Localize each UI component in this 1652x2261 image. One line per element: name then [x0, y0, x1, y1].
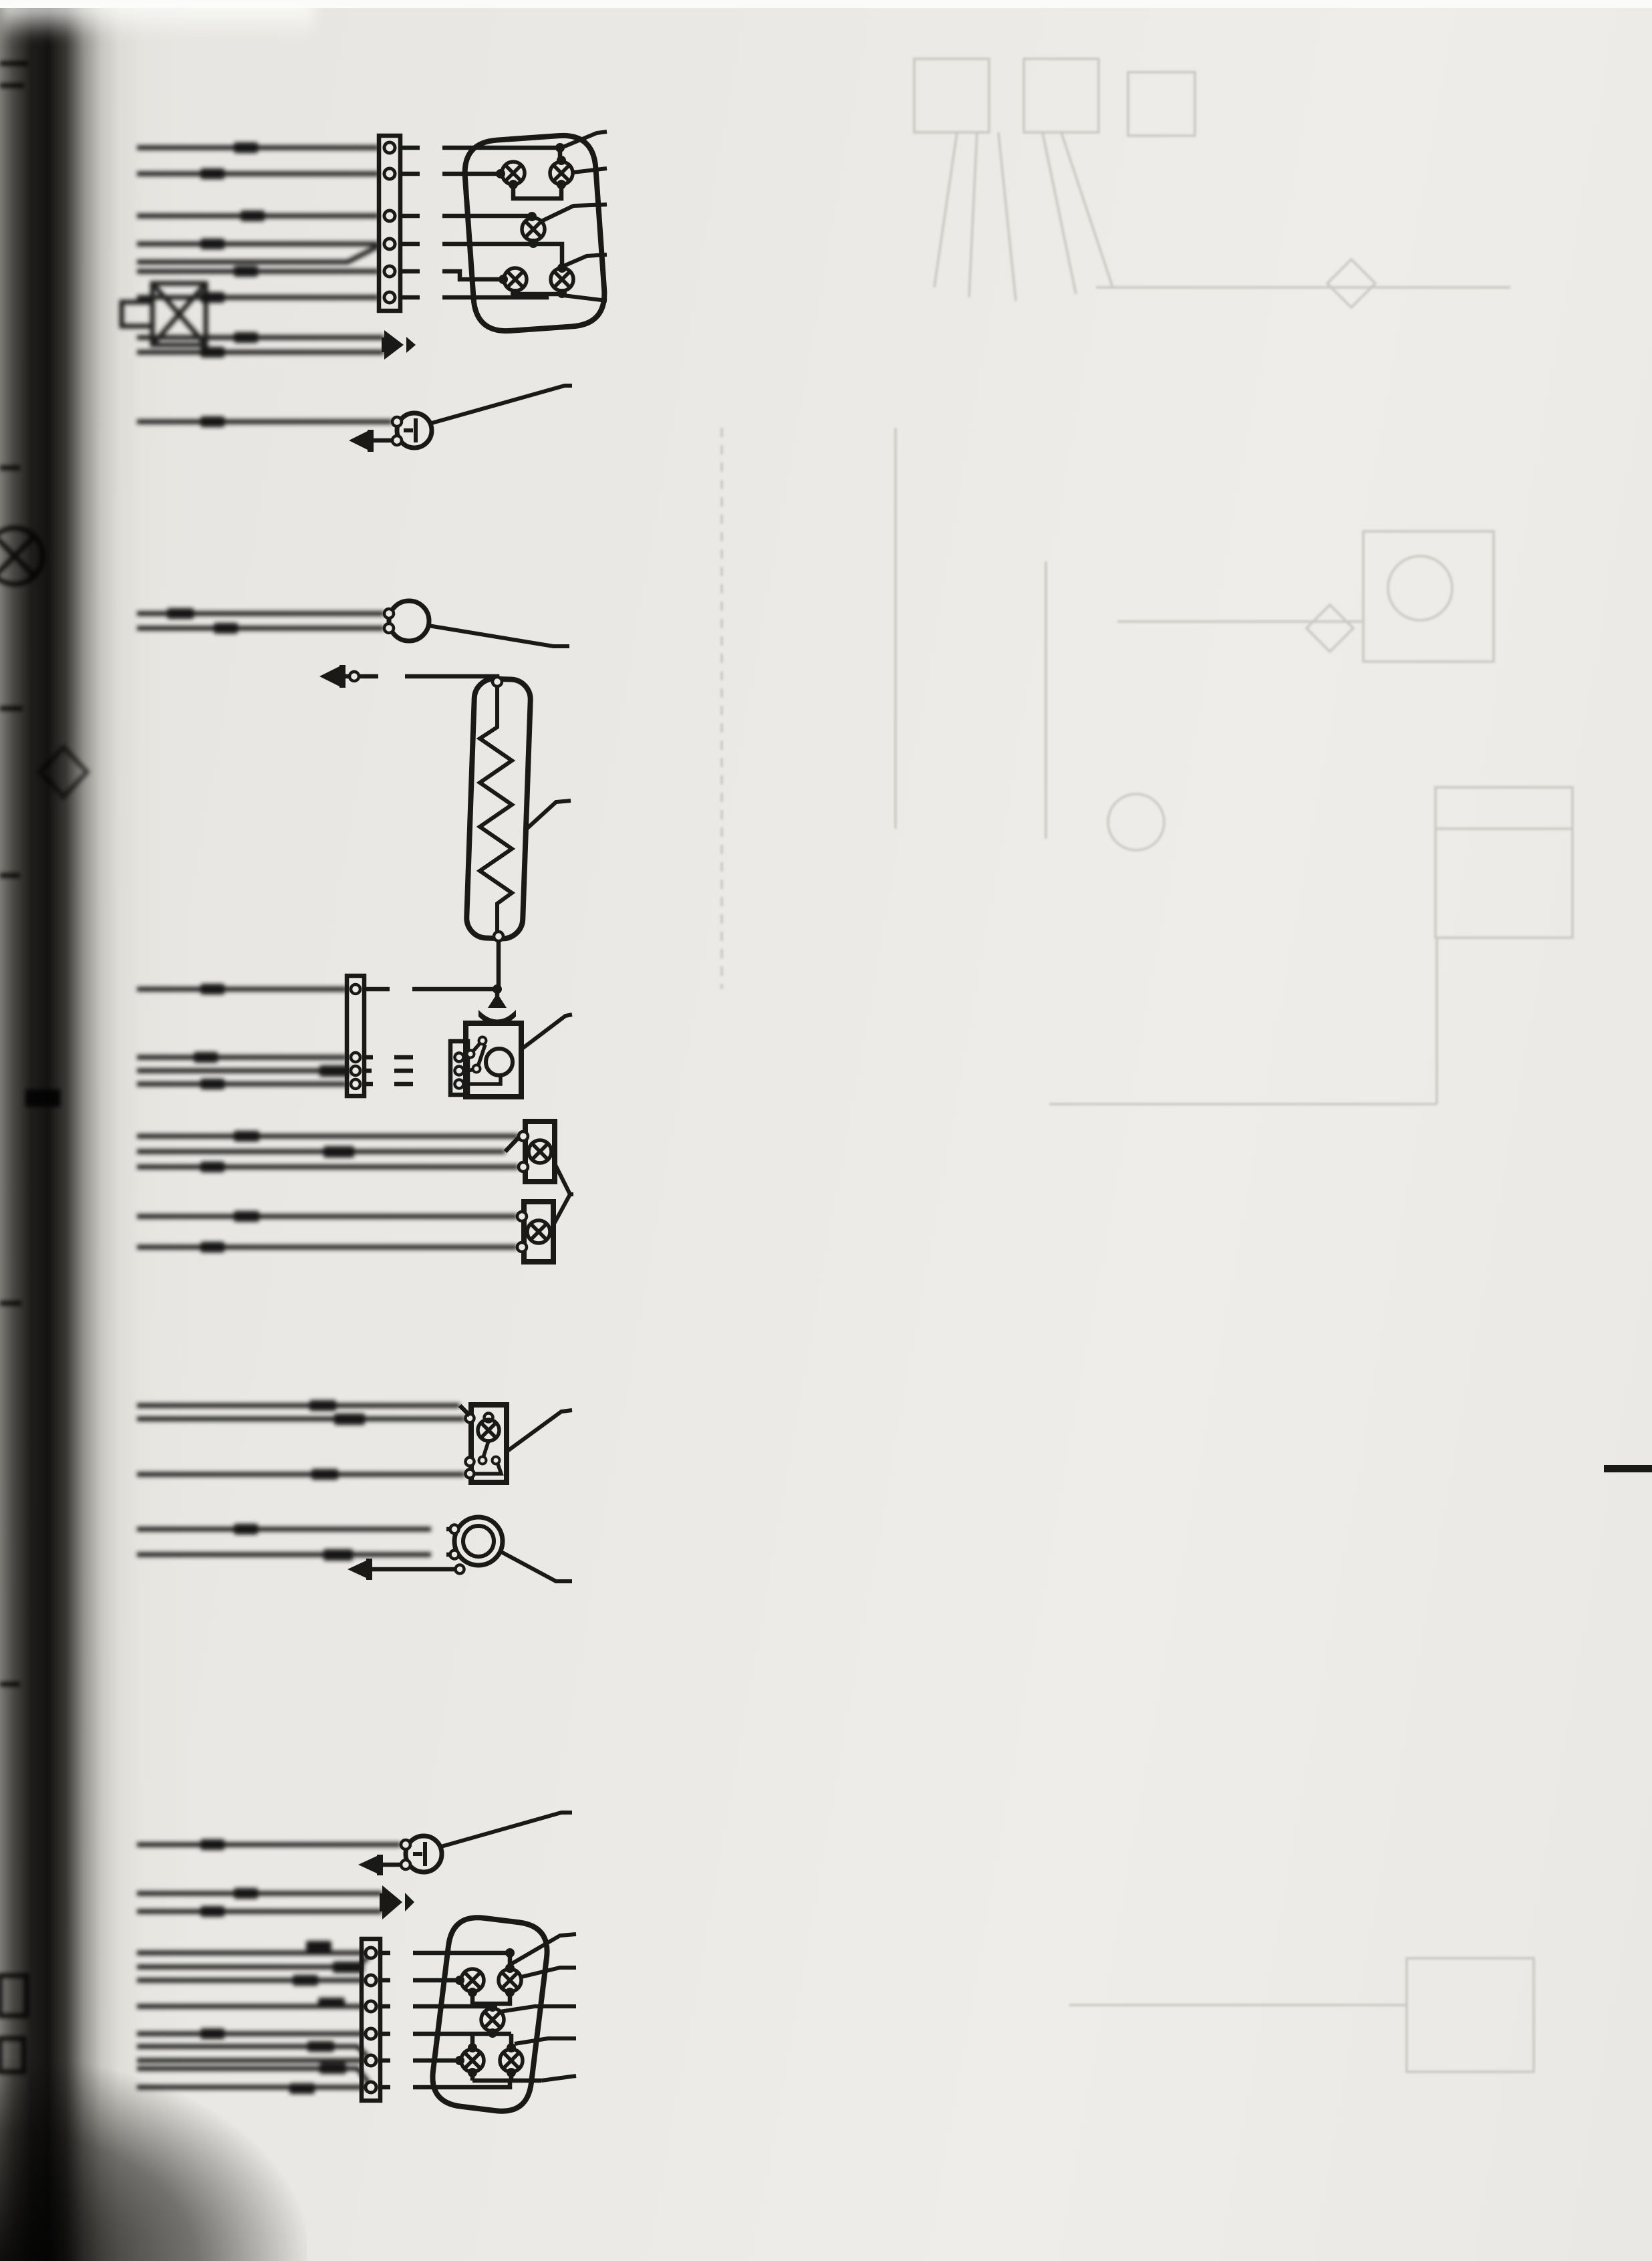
- bulb-icon: [461, 1969, 523, 2072]
- book-gutter-shadow: [0, 0, 441, 2261]
- corner-shadow: [0, 2058, 307, 2261]
- heater-resistor-zigzag: [480, 686, 512, 932]
- scan-edge-top-left: [0, 0, 314, 39]
- bulb-icon: [527, 1220, 550, 1243]
- lamp-with-switch-86: [460, 1405, 572, 1482]
- scanned-page: [0, 0, 1652, 2261]
- ghost-diagram-shapes: [722, 59, 1572, 2072]
- bulb-icon: [529, 1140, 551, 1163]
- lamp-housing-outline: [429, 1914, 551, 2115]
- motor-icon: [486, 1049, 513, 1075]
- lamp-housing-outline: [462, 134, 606, 334]
- marker-lamps-87: [505, 1121, 573, 1262]
- chapter-tab-underline: [1604, 1465, 1652, 1472]
